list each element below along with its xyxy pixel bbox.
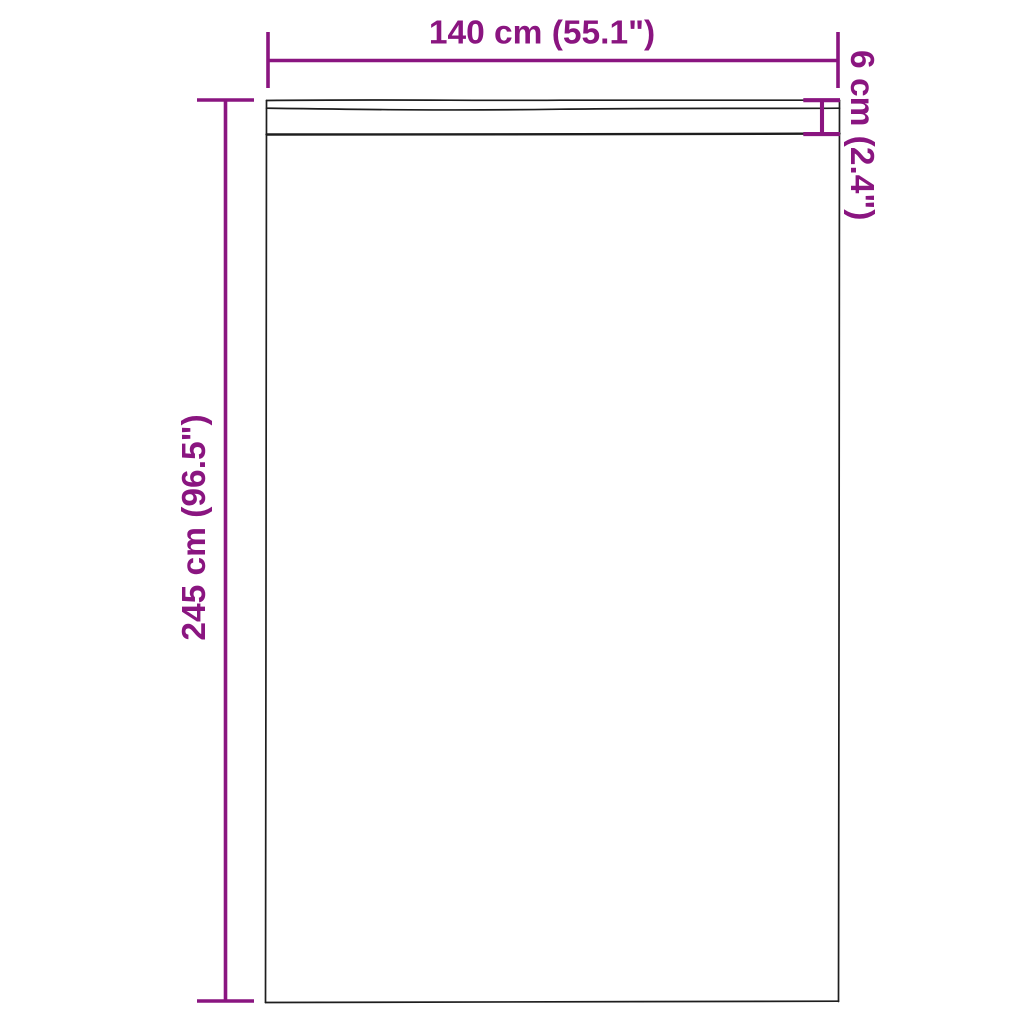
svg-text:140 cm (55.1"): 140 cm (55.1") <box>429 15 655 52</box>
svg-text:6 cm (2.4"): 6 cm (2.4") <box>843 50 880 220</box>
svg-text:245 cm (96.5"): 245 cm (96.5") <box>176 414 213 640</box>
